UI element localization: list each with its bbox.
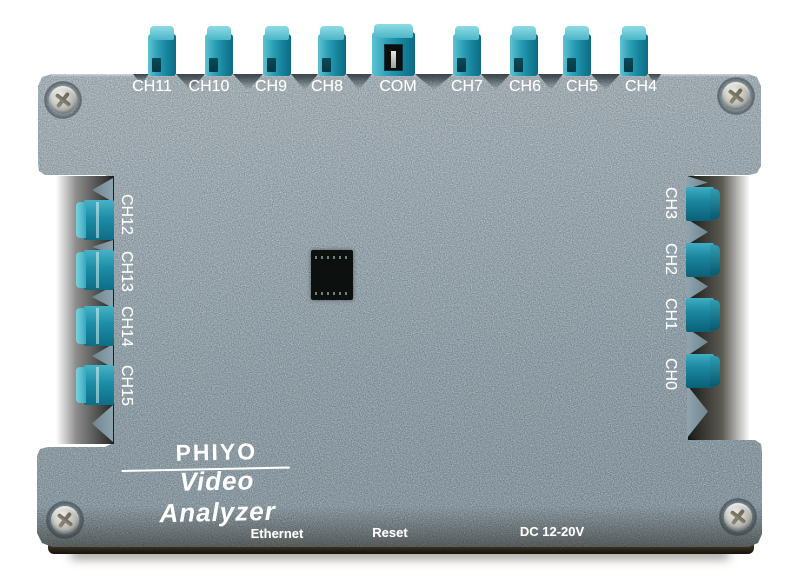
connector-cap bbox=[565, 26, 589, 40]
port-label-ch10: CH10 bbox=[179, 78, 239, 96]
connector-highlight bbox=[96, 202, 99, 238]
port-label-ch8: CH8 bbox=[297, 78, 357, 96]
port-label-ch1: CH1 bbox=[661, 290, 679, 338]
indicator-window bbox=[311, 250, 353, 300]
connector-body bbox=[84, 306, 114, 346]
corner-screw-top-left bbox=[44, 81, 82, 119]
label-power: DC 12-20V bbox=[492, 524, 612, 539]
port-ch4 bbox=[620, 26, 648, 76]
port-com bbox=[372, 24, 415, 76]
port-ch5 bbox=[563, 26, 591, 76]
connector-cap bbox=[265, 26, 289, 40]
port-label-ch6: CH6 bbox=[495, 78, 555, 96]
port-ch11 bbox=[148, 26, 176, 76]
corner-screw-bottom-left bbox=[46, 501, 84, 539]
connector-cap bbox=[207, 26, 231, 40]
screw-head bbox=[49, 86, 77, 114]
connector-cap bbox=[320, 26, 344, 40]
connector-latch bbox=[457, 58, 466, 72]
connector-cap bbox=[512, 26, 536, 40]
port-ch14 bbox=[76, 306, 114, 346]
connector-cap bbox=[76, 252, 86, 288]
port-label-ch14: CH14 bbox=[117, 302, 135, 350]
port-label-ch5: CH5 bbox=[552, 78, 612, 96]
connector-highlight bbox=[96, 252, 99, 288]
connector-latch bbox=[152, 58, 161, 72]
indicator-marks-top bbox=[315, 256, 349, 259]
port-label-ch9: CH9 bbox=[241, 78, 301, 96]
port-ch13 bbox=[76, 250, 114, 290]
port-label-ch13: CH13 bbox=[117, 247, 135, 295]
port-ch10 bbox=[205, 26, 233, 76]
connector-body bbox=[84, 250, 114, 290]
branding-block: PHIYO Video Analyzer bbox=[121, 437, 313, 530]
screw-head bbox=[51, 506, 79, 534]
connector-tip bbox=[710, 245, 720, 275]
connector-tip bbox=[710, 356, 720, 386]
port-ch6 bbox=[510, 26, 538, 76]
screw-head bbox=[724, 503, 752, 531]
port-label-ch7: CH7 bbox=[437, 78, 497, 96]
connector-latch bbox=[624, 58, 633, 72]
connector-highlight bbox=[96, 308, 99, 344]
device-body: PHIYO Video Analyzer Ethernet Reset DC 1… bbox=[37, 70, 763, 554]
video-analyzer-photo: PHIYO Video Analyzer Ethernet Reset DC 1… bbox=[0, 0, 800, 583]
connector-cap bbox=[455, 26, 479, 40]
port-ch9 bbox=[263, 26, 291, 76]
connector-latch bbox=[267, 58, 276, 72]
connector-cap bbox=[76, 202, 86, 238]
connector-latch bbox=[514, 58, 523, 72]
connector-latch bbox=[322, 58, 331, 72]
product-name: Video Analyzer bbox=[122, 464, 313, 530]
port-label-ch0: CH0 bbox=[661, 350, 679, 398]
port-ch12 bbox=[76, 200, 114, 240]
label-reset: Reset bbox=[330, 525, 450, 540]
port-ch3 bbox=[686, 187, 720, 221]
port-label-ch3: CH3 bbox=[661, 179, 679, 227]
connector-pin bbox=[391, 51, 396, 68]
label-ethernet: Ethernet bbox=[217, 526, 337, 541]
port-label-ch12: CH12 bbox=[117, 190, 135, 238]
port-label-ch15: CH15 bbox=[117, 361, 135, 409]
indicator-marks-bottom bbox=[315, 292, 349, 295]
connector-tip bbox=[710, 189, 720, 219]
port-label-com: COM bbox=[368, 78, 428, 96]
connector-highlight bbox=[96, 367, 99, 403]
connector-cap bbox=[622, 26, 646, 40]
port-ch7 bbox=[453, 26, 481, 76]
connector-cap bbox=[150, 26, 174, 40]
connector-body bbox=[84, 365, 114, 405]
connector-cap bbox=[76, 367, 86, 403]
connector-body bbox=[84, 200, 114, 240]
screw-head bbox=[722, 82, 750, 110]
corner-screw-top-right bbox=[717, 77, 755, 115]
port-ch8 bbox=[318, 26, 346, 76]
corner-screw-bottom-right bbox=[719, 498, 757, 536]
connector-cap bbox=[374, 24, 413, 38]
port-label-ch11: CH11 bbox=[122, 78, 182, 96]
connector-tip bbox=[710, 300, 720, 330]
port-label-ch2: CH2 bbox=[661, 235, 679, 283]
connector-latch bbox=[567, 58, 576, 72]
port-ch2 bbox=[686, 243, 720, 277]
connector-cap bbox=[76, 308, 86, 344]
port-ch15 bbox=[76, 365, 114, 405]
port-label-ch4: CH4 bbox=[611, 78, 671, 96]
brand-name: PHIYO bbox=[121, 437, 312, 468]
connector-latch bbox=[209, 58, 218, 72]
port-ch0 bbox=[686, 354, 720, 388]
port-ch1 bbox=[686, 298, 720, 332]
